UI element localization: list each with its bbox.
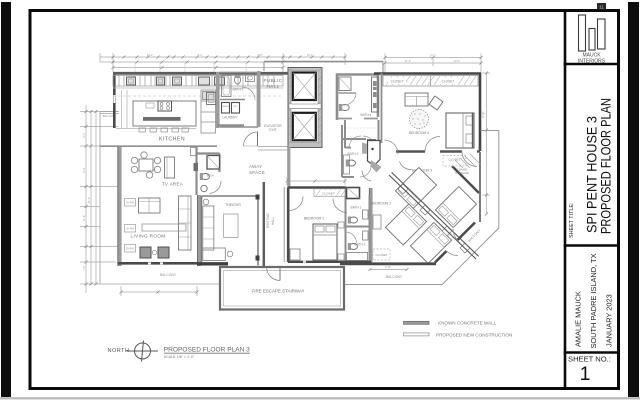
svg-text:SPACE: SPACE (249, 170, 265, 175)
svg-text:BATH 3: BATH 3 (348, 152, 359, 156)
svg-text:11'-6": 11'-6" (405, 59, 411, 63)
svg-text:CLOSET: CLOSET (375, 253, 387, 257)
svg-text:12'-4": 12'-4" (454, 59, 461, 63)
svg-text:BATH: BATH (207, 174, 214, 178)
svg-text:24'-3": 24'-3" (430, 54, 437, 58)
svg-text:WASH: WASH (222, 105, 229, 108)
svg-text:NORTH: NORTH (108, 348, 130, 354)
svg-text:EXISTING: EXISTING (266, 213, 270, 228)
svg-text:BALCONY: BALCONY (160, 273, 177, 277)
svg-text:BEDROOM 4: BEDROOM 4 (409, 131, 429, 135)
svg-text:HALL: HALL (271, 217, 275, 225)
svg-text:12'-4": 12'-4" (147, 53, 154, 57)
svg-text:11: 11 (599, 4, 604, 9)
svg-text:CLOSET: CLOSET (442, 80, 455, 84)
svg-text:7'-0": 7'-0" (82, 265, 86, 270)
svg-text:PROPOSED NEW CONSTRUCTION: PROPOSED NEW CONSTRUCTION (436, 333, 512, 338)
svg-text:CLOSET: CLOSET (448, 158, 460, 162)
svg-text:DRY: DRY (233, 106, 238, 108)
svg-text:CH 460: CH 460 (126, 248, 135, 251)
svg-text:CH 460: CH 460 (126, 228, 135, 231)
svg-text:BATH 2: BATH 2 (355, 243, 366, 247)
svg-text:INTERIORS: INTERIORS (578, 58, 606, 64)
svg-text:EXIT: EXIT (269, 128, 277, 132)
svg-text:THEATER: THEATER (225, 203, 241, 207)
svg-text:BATH 1: BATH 1 (351, 206, 362, 210)
svg-text:BATH 4: BATH 4 (361, 113, 372, 117)
svg-text:8'-2": 8'-2" (197, 53, 202, 57)
svg-text:6'-4": 6'-4" (82, 167, 86, 172)
svg-text:LIVING ROOM: LIVING ROOM (130, 234, 165, 239)
svg-text:BEDROOM 1: BEDROOM 1 (304, 217, 324, 221)
svg-text:STORAGE: STORAGE (455, 171, 469, 175)
svg-text:9'-2": 9'-2" (82, 132, 86, 137)
svg-text:JANUARY 2023: JANUARY 2023 (605, 294, 614, 347)
svg-text:BEDROOM 2: BEDROOM 2 (371, 202, 391, 206)
svg-text:LAUNDRY: LAUNDRY (222, 116, 238, 120)
svg-text:CH 460: CH 460 (126, 202, 135, 205)
svg-text:BATH 5: BATH 5 (233, 88, 244, 92)
svg-text:PUBLIC: PUBLIC (264, 78, 283, 83)
svg-text:KITCHEN: KITCHEN (159, 137, 185, 143)
svg-text:FIRE ESCAPE STAIRWAY: FIRE ESCAPE STAIRWAY (252, 289, 305, 294)
svg-text:9'-6": 9'-6" (257, 53, 262, 57)
svg-text:BALCONY: BALCONY (386, 275, 403, 279)
svg-text:TV AREA: TV AREA (162, 181, 183, 186)
svg-text:7'-6": 7'-6" (482, 110, 486, 118)
svg-text:AMALIE MAUCK: AMALIE MAUCK (574, 291, 583, 347)
svg-text:PROPOSED FLOOR PLAN: PROPOSED FLOOR PLAN (598, 98, 614, 234)
svg-text:KNOWN CONCRETE WALL: KNOWN CONCRETE WALL (438, 321, 497, 326)
svg-text:7'-8": 7'-8" (385, 265, 391, 269)
svg-text:SCALE 1/8" = 1'-0": SCALE 1/8" = 1'-0" (164, 355, 195, 359)
svg-text:1: 1 (580, 363, 591, 385)
svg-text:SHEET TITLE:: SHEET TITLE: (569, 203, 575, 238)
svg-text:HALL: HALL (266, 84, 279, 89)
svg-text:10'-1": 10'-1" (307, 53, 314, 57)
svg-text:PROPOSED FLOOR PLAN 3: PROPOSED FLOOR PLAN 3 (164, 347, 250, 354)
svg-text:AWAY: AWAY (249, 164, 262, 169)
svg-text:SOUTH PADRE ISLAND, TX: SOUTH PADRE ISLAND, TX (589, 253, 598, 348)
svg-text:CLOSET: CLOSET (391, 80, 404, 84)
svg-text:CLOSET: CLOSET (322, 191, 334, 195)
svg-text:11'-8": 11'-8" (82, 215, 86, 221)
svg-text:21'-6": 21'-6" (87, 197, 91, 204)
